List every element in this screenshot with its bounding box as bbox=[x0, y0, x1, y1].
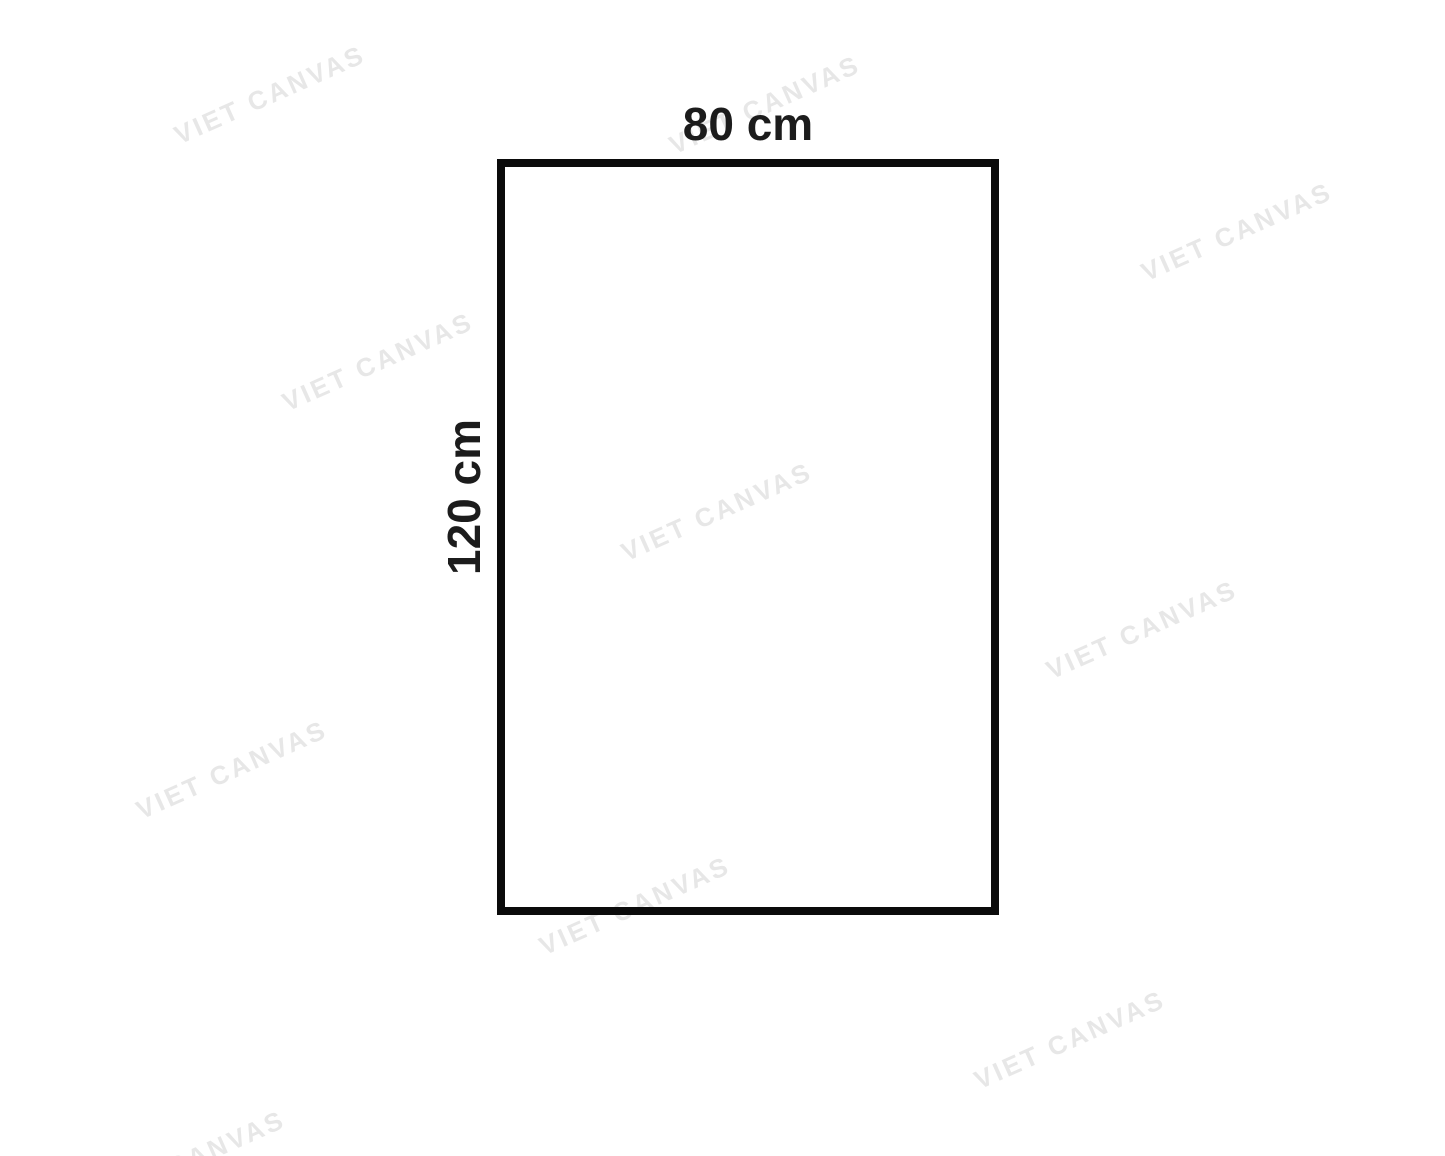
watermark-text: VIET CANVAS bbox=[170, 39, 371, 151]
watermark-text: VIET CANVAS bbox=[90, 1104, 291, 1156]
watermark-text: VIET CANVAS bbox=[278, 306, 479, 418]
height-dimension-label: 120 cm bbox=[437, 419, 491, 575]
watermark-text: VIET CANVAS bbox=[132, 714, 333, 826]
watermark-text: VIET CANVAS bbox=[1137, 176, 1338, 288]
product-mockup: VIET CANVASVIET CANVASVIET CANVASVIET CA… bbox=[0, 0, 1445, 1156]
watermark-text: VIET CANVAS bbox=[1042, 574, 1243, 686]
watermark-text: VIET CANVAS bbox=[970, 984, 1171, 1096]
width-dimension-label: 80 cm bbox=[497, 96, 999, 152]
canvas-outline bbox=[497, 159, 999, 915]
